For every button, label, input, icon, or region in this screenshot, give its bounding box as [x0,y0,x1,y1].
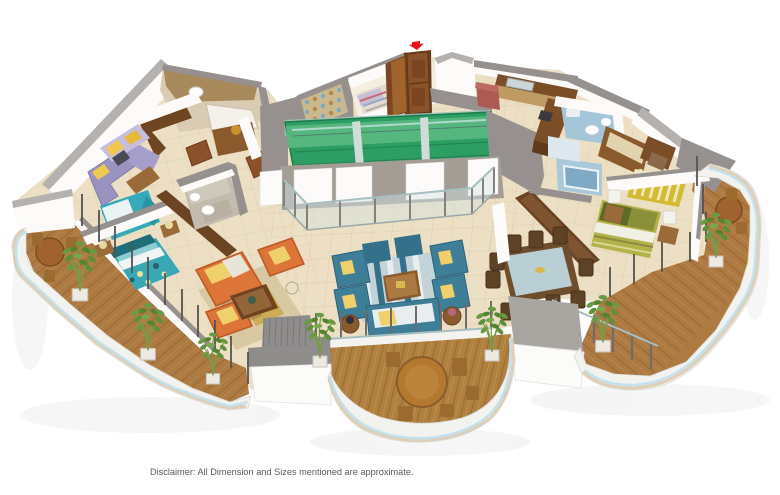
svg-text:Disclaimer: All Dimension and: Disclaimer: All Dimension and Sizes ment… [150,467,414,477]
